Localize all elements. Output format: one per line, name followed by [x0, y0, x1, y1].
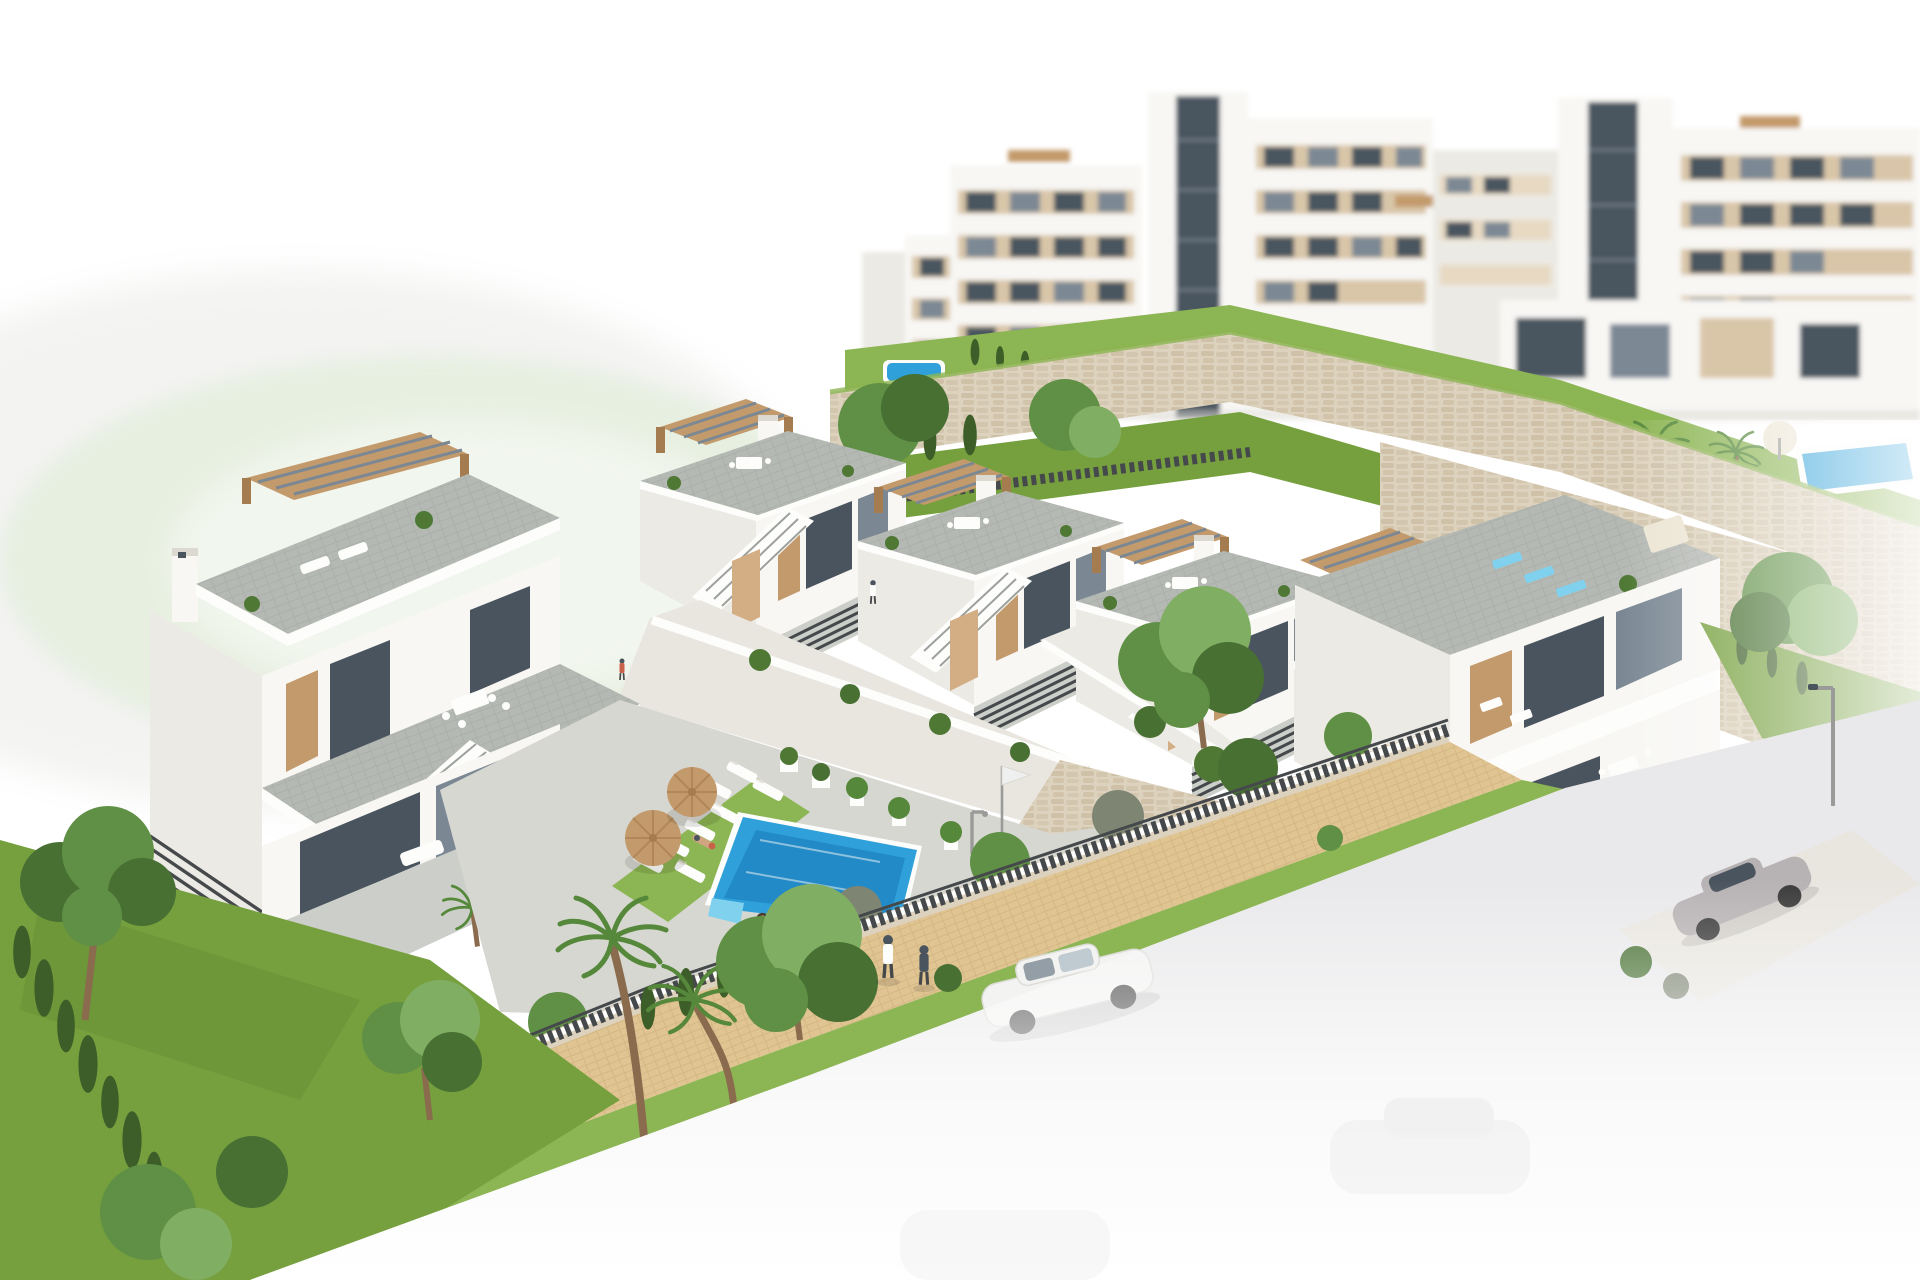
render-canvas — [0, 0, 1920, 1280]
architectural-render: Aerial 3D architectural render of a new-… — [0, 0, 1920, 1280]
